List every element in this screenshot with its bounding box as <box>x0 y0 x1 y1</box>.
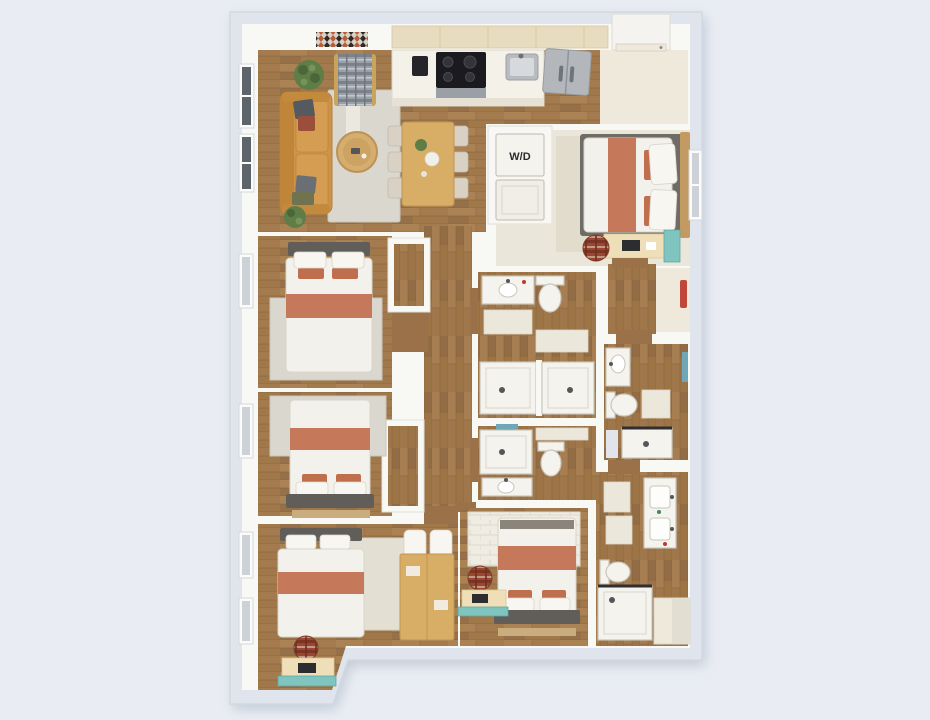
plaid-blanket <box>338 54 372 106</box>
double-vanity <box>644 478 676 548</box>
bathroom-c <box>604 344 688 460</box>
bath-mat <box>484 310 532 334</box>
soap-red <box>663 542 667 546</box>
hallway-floor <box>424 226 472 510</box>
table-bowl <box>425 152 439 166</box>
doorway-bedroom-1 <box>612 258 648 268</box>
teal-towel <box>682 352 688 382</box>
bed <box>286 400 374 508</box>
bathroom-b <box>478 424 596 500</box>
sink <box>650 486 670 508</box>
window <box>239 254 253 308</box>
walk-in-shower <box>622 428 672 458</box>
desk <box>583 230 680 262</box>
toilet <box>606 392 637 418</box>
table-decor <box>351 148 360 154</box>
laptop <box>622 240 640 251</box>
shower-landing <box>606 430 618 458</box>
red-wall-art <box>680 280 687 308</box>
armchair <box>334 54 376 106</box>
refrigerator <box>543 48 592 95</box>
desk-chair-plaid <box>583 235 609 261</box>
door-knob <box>660 46 663 49</box>
corridor-floor <box>608 264 656 334</box>
plant-large <box>294 60 324 90</box>
washer-dryer-label: W/D <box>509 151 530 163</box>
bathroom-a <box>478 272 596 418</box>
washer-dryer-closet: W/D <box>488 126 552 224</box>
doorway-bath-d <box>608 460 640 474</box>
bathroom-vanity <box>482 276 534 304</box>
laptop <box>298 663 316 673</box>
floor-plan-image: W/D <box>0 0 930 720</box>
laptop <box>472 594 488 603</box>
kitchen <box>392 26 608 106</box>
wall-art <box>316 32 368 47</box>
jute-mat <box>498 628 576 636</box>
bathroom-vanity <box>606 348 630 386</box>
bedroom-5 <box>458 508 588 646</box>
window <box>239 134 254 192</box>
throw-pillow-red <box>298 116 315 131</box>
window <box>239 404 253 458</box>
sofa <box>280 92 332 214</box>
walk-in-shower <box>598 586 652 640</box>
shower-stall <box>542 362 594 414</box>
bed-runner <box>608 138 636 232</box>
throw-pillow-dark <box>295 175 317 194</box>
bathroom-vanity <box>482 478 532 496</box>
teal-cabinet <box>664 230 680 262</box>
desk-chair-plaid <box>468 566 492 590</box>
shower-stall <box>480 430 532 474</box>
table-plant <box>415 139 427 151</box>
teal-cabinet <box>458 607 508 616</box>
teal-towel <box>496 424 518 429</box>
shower-partition <box>536 360 542 416</box>
closet-nook <box>654 598 690 644</box>
dining-set <box>388 122 468 206</box>
bath-mat <box>642 390 670 418</box>
bath-mat <box>606 516 632 544</box>
bath-mat <box>604 482 630 512</box>
toilet <box>600 560 630 584</box>
teal-cabinet <box>278 676 336 686</box>
window <box>689 150 702 220</box>
apartment-floor-plan: W/D <box>230 12 702 704</box>
upper-cabinets <box>392 26 608 48</box>
bed <box>286 242 372 372</box>
doorway-bedroom-2 <box>390 312 428 352</box>
window <box>239 598 253 644</box>
bed <box>580 132 690 238</box>
throw-blanket-olive <box>292 192 314 205</box>
jute-mat <box>292 510 370 518</box>
oven-front <box>436 88 486 98</box>
bath-mat <box>536 428 588 440</box>
plant-small <box>284 206 306 228</box>
bathroom-d <box>596 460 690 646</box>
entry-floor <box>600 50 688 124</box>
shower-stall <box>480 362 536 414</box>
coffee-maker <box>412 56 428 76</box>
doorway-bath-c <box>616 330 652 346</box>
window <box>239 532 253 578</box>
coffee-table <box>337 132 377 172</box>
desk-chair-plaid <box>294 636 318 660</box>
stove <box>436 52 486 98</box>
sink <box>650 518 670 540</box>
entry-door <box>616 44 666 51</box>
bath-mat <box>536 330 588 352</box>
doorway-bedroom-4 <box>424 506 458 526</box>
window <box>239 64 254 128</box>
kitchen-sink <box>506 54 538 81</box>
soap-red <box>522 280 526 284</box>
decor-green <box>657 510 661 514</box>
